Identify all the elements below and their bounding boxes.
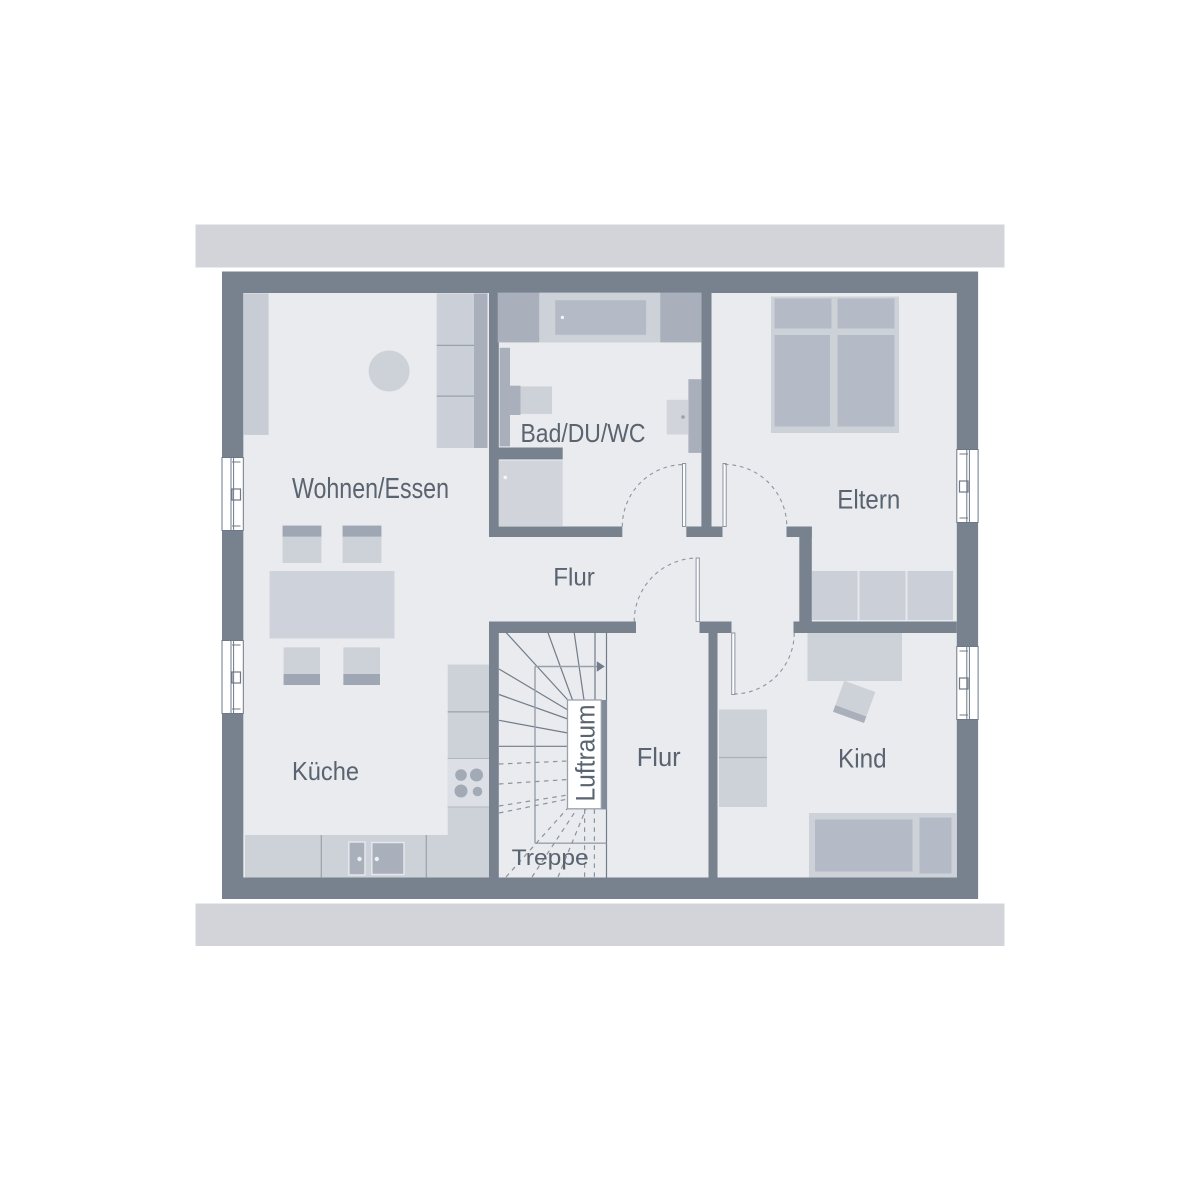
svg-text:Luftraum: Luftraum — [570, 705, 600, 802]
svg-text:Kind: Kind — [838, 744, 887, 774]
svg-text:Eltern: Eltern — [837, 484, 900, 514]
svg-text:Bad/DU/WC: Bad/DU/WC — [521, 418, 646, 448]
svg-text:Wohnen/Essen: Wohnen/Essen — [292, 473, 449, 505]
svg-text:Treppe: Treppe — [512, 845, 589, 870]
svg-text:Küche: Küche — [292, 756, 359, 786]
svg-text:Flur: Flur — [637, 744, 682, 772]
svg-text:Flur: Flur — [553, 563, 595, 591]
